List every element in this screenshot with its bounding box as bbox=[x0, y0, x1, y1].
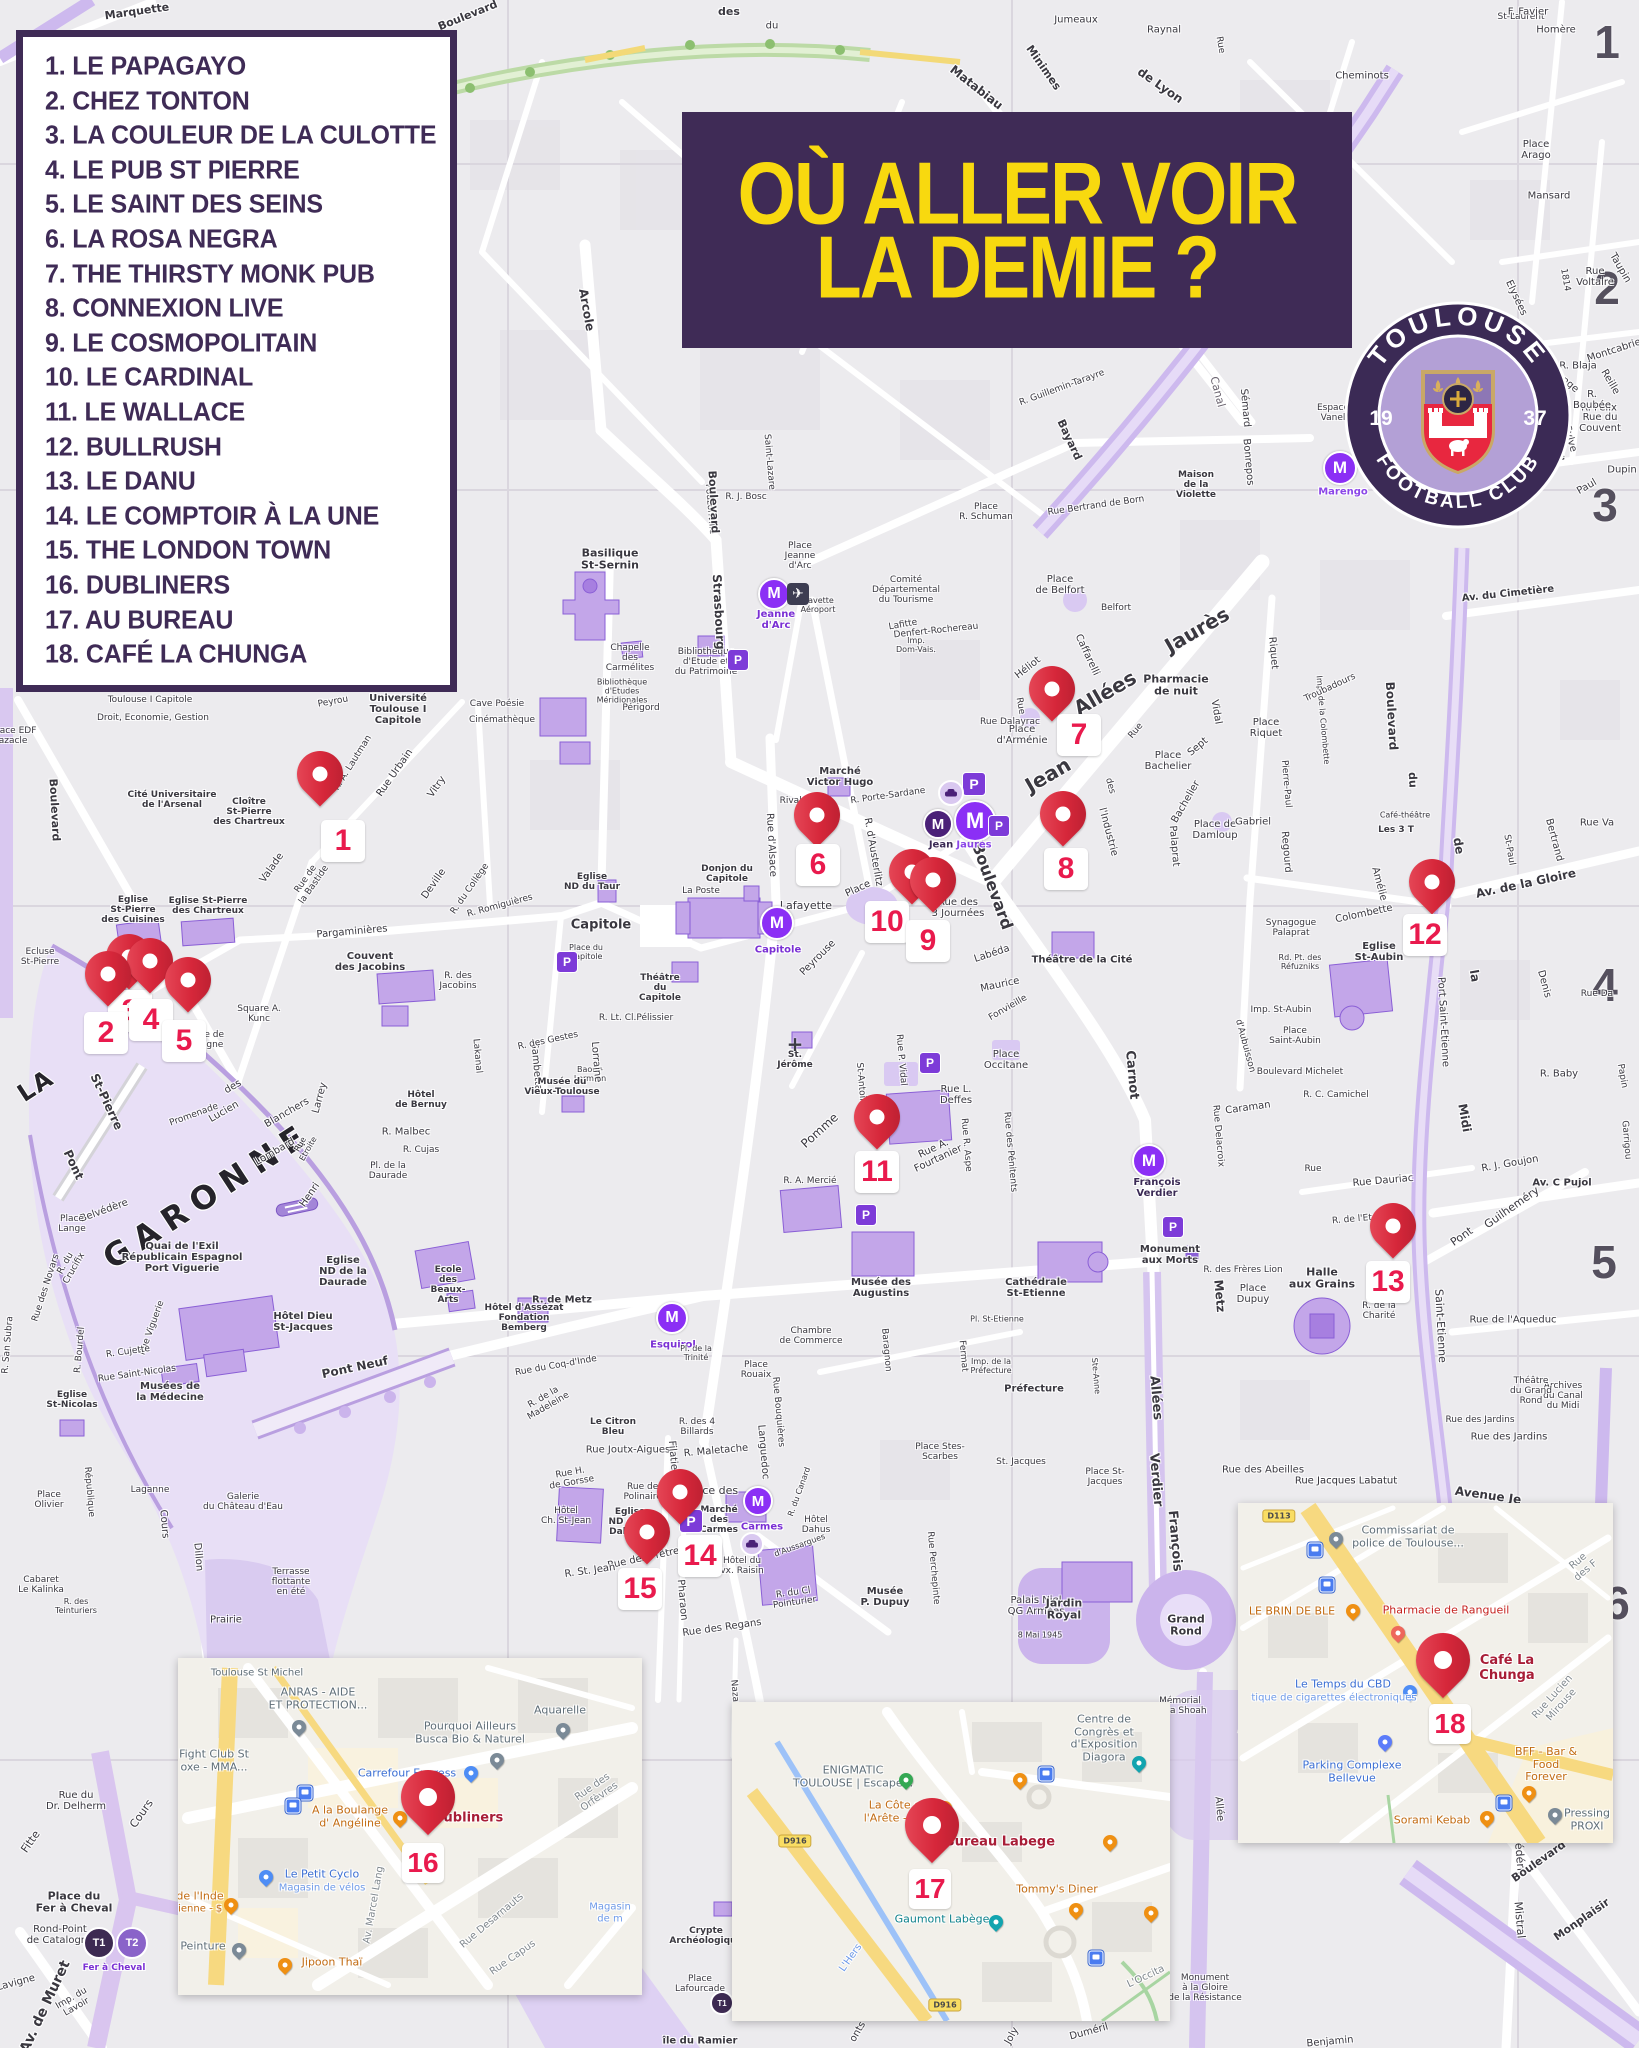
poi-pin-hole bbox=[467, 1769, 474, 1776]
legend-item-11: 11. LE WALLACE bbox=[45, 394, 450, 430]
legend-item-8: 8. CONNEXION LIVE bbox=[45, 290, 450, 326]
poi-label: BFF - Bar & Food Forever bbox=[1513, 1746, 1580, 1784]
bus-stop-icon bbox=[1320, 1578, 1335, 1593]
poi-label: dienne - $ bbox=[178, 1903, 222, 1915]
legend-item-9: 9. LE COSMOPOLITAIN bbox=[45, 325, 450, 361]
poi-pin-hole bbox=[235, 1946, 242, 1953]
pin-hole bbox=[415, 1784, 440, 1809]
inset-map-dubliners: Toulouse St MichelANRAS - AIDE ET PROTEC… bbox=[178, 1658, 642, 1995]
poi-label: Le Temps du CBD bbox=[1295, 1679, 1391, 1692]
inset-map-cafe-la-chunga: Commissariat de police de Toulouse...LE … bbox=[1238, 1503, 1613, 1843]
legend-item-17: 17. AU BUREAU bbox=[45, 602, 450, 638]
logo-shield bbox=[1423, 372, 1493, 472]
poi-pin-hole bbox=[1394, 1629, 1401, 1636]
poi-pin-hole bbox=[396, 1814, 403, 1821]
poi-pin-hole bbox=[1551, 1811, 1558, 1818]
poi-label: Pourquoi Ailleurs Busca Bio & Naturel bbox=[415, 1720, 525, 1745]
poi-label: Aquarelle bbox=[534, 1705, 586, 1718]
legend-item-18: 18. CAFÉ LA CHUNGA bbox=[45, 636, 450, 672]
poi-label: tique de cigarettes électroniques bbox=[1251, 1692, 1416, 1704]
poi-pin-hole bbox=[902, 1776, 909, 1783]
poi-pin-hole bbox=[1332, 1535, 1339, 1542]
bus-stop-icon bbox=[298, 1786, 313, 1801]
logo-year-right: 37 bbox=[1523, 407, 1546, 430]
title-banner: OÙ ALLER VOIR LA DEMIE ? bbox=[682, 112, 1352, 348]
poi-label: Pressing PROXI bbox=[1564, 1807, 1610, 1832]
bus-stop-icon bbox=[286, 1799, 301, 1814]
bus-stop-icon bbox=[1089, 1951, 1104, 1966]
poi-pin-hole bbox=[227, 1901, 234, 1908]
poi-pin-hole bbox=[1106, 1838, 1113, 1845]
poi-pin-hole bbox=[1381, 1738, 1388, 1745]
legend-item-15: 15. THE LONDON TOWN bbox=[45, 533, 450, 569]
poi-label: Peinture bbox=[180, 1941, 225, 1954]
legend-item-2: 2. CHEZ TONTON bbox=[45, 83, 450, 119]
bus-stop-icon bbox=[1039, 1767, 1054, 1782]
legend-item-3: 3. LA COULEUR DE LA CULOTTE bbox=[45, 117, 450, 153]
bus-stop-icon bbox=[1308, 1543, 1323, 1558]
inset-map-au-bureau: Centre de Congrès et d'Exposition Diagor… bbox=[732, 1702, 1170, 2021]
poi-label: LE BRIN DE BLE bbox=[1249, 1606, 1335, 1619]
poi-label: Fight Club St oxe - MMA... bbox=[179, 1748, 249, 1773]
poi-pin-hole bbox=[295, 1723, 302, 1730]
poi-pin-hole bbox=[559, 1726, 566, 1733]
road-badge: D916 bbox=[778, 1835, 811, 1848]
poi-label: de l'Inde bbox=[178, 1891, 224, 1904]
road-badge: D916 bbox=[928, 1999, 961, 2012]
poi-label: A la Boulange d' Angéline bbox=[312, 1804, 388, 1829]
poi-pin-hole bbox=[1016, 1776, 1023, 1783]
poi-label: Tommy's Diner bbox=[1016, 1884, 1098, 1897]
poi-label: Centre de Congrès et d'Exposition Diagor… bbox=[1070, 1714, 1137, 1765]
toulouse-fc-logo: TOULOUSE FOOTBALL CLUB 19 37 bbox=[1343, 300, 1573, 530]
legend-box: 1. LE PAPAGAYO2. CHEZ TONTON3. LA COULEU… bbox=[16, 30, 457, 692]
toulouse-bars-map: 123456 MarquetteBoulevarddesduMatabiauMi… bbox=[0, 0, 1639, 2048]
poi-label: Sorami Kebab bbox=[1394, 1815, 1470, 1828]
inset-pin-number-18: 18 bbox=[1429, 1704, 1471, 1744]
poi-label: Pharmacie de Rangueil bbox=[1383, 1605, 1510, 1618]
legend-item-14: 14. LE COMPTOIR À LA UNE bbox=[45, 498, 450, 534]
poi-pin-hole bbox=[1147, 1909, 1154, 1916]
bus-stop-icon bbox=[1497, 1796, 1512, 1811]
legend-item-6: 6. LA ROSA NEGRA bbox=[45, 221, 450, 257]
legend-item-7: 7. THE THIRSTY MONK PUB bbox=[45, 256, 450, 292]
poi-pin-hole bbox=[1072, 1906, 1079, 1913]
legend-item-5: 5. LE SAINT DES SEINS bbox=[45, 187, 450, 223]
poi-label: ANRAS - AIDE ET PROTECTION... bbox=[269, 1686, 368, 1711]
pin-hole bbox=[919, 1812, 944, 1837]
inset-pin-number-17: 17 bbox=[909, 1869, 951, 1909]
poi-pin-hole bbox=[281, 1961, 288, 1968]
logo-year-left: 19 bbox=[1369, 407, 1392, 430]
poi-label: Jipoon Thaï bbox=[302, 1957, 363, 1970]
poi-pin-hole bbox=[1349, 1607, 1356, 1614]
legend-item-16: 16. DUBLINERS bbox=[45, 567, 450, 603]
poi-label: Le Petit Cyclo bbox=[285, 1869, 359, 1882]
legend-item-10: 10. LE CARDINAL bbox=[45, 360, 450, 396]
legend-item-4: 4. LE PUB ST PIERRE bbox=[45, 152, 450, 188]
title-line-2: LA DEMIE ? bbox=[816, 223, 1218, 311]
legend-item-13: 13. LE DANU bbox=[45, 463, 450, 499]
poi-pin-hole bbox=[1135, 1759, 1142, 1766]
legend-item-1: 1. LE PAPAGAYO bbox=[45, 48, 450, 84]
poi-label: Magasin de m bbox=[589, 1902, 631, 1925]
poi-pin-hole bbox=[493, 1756, 500, 1763]
poi-label: Commissariat de police de Toulouse... bbox=[1352, 1524, 1464, 1549]
road-badge: D113 bbox=[1262, 1510, 1295, 1523]
legend-item-12: 12. BULLRUSH bbox=[45, 429, 450, 465]
poi-label: Magasin de vélos bbox=[279, 1882, 366, 1894]
poi-pin-hole bbox=[1525, 1789, 1532, 1796]
poi-label: Parking Complexe Bellevue bbox=[1303, 1759, 1402, 1784]
poi-label: Gaumont Labège bbox=[895, 1914, 990, 1927]
poi-pin-hole bbox=[992, 1918, 999, 1925]
poi-label: Toulouse St Michel bbox=[211, 1667, 303, 1679]
poi-label: ENIGMATIC TOULOUSE | Escape... bbox=[793, 1764, 913, 1789]
pin-hole bbox=[1430, 1647, 1455, 1672]
poi-pin-hole bbox=[1483, 1814, 1490, 1821]
poi-pin-hole bbox=[262, 1873, 269, 1880]
inset-pin-number-16: 16 bbox=[402, 1843, 444, 1883]
legend-list: 1. LE PAPAGAYO2. CHEZ TONTON3. LA COULEU… bbox=[45, 49, 450, 672]
